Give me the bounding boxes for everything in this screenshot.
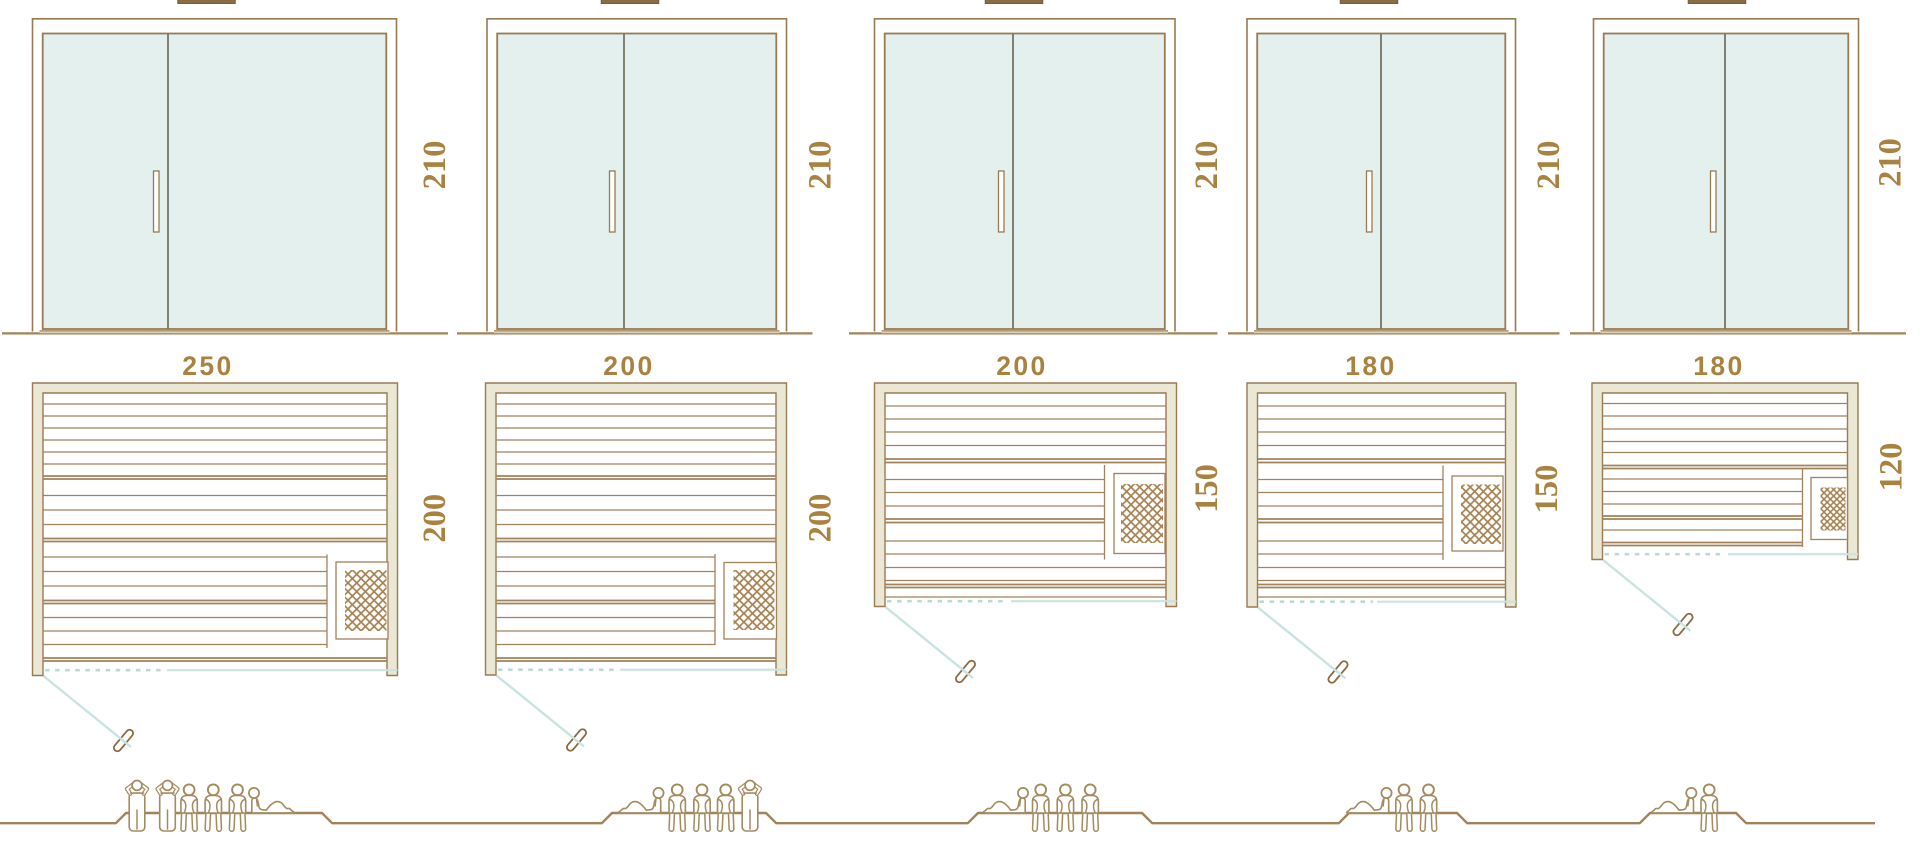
svg-text:180: 180 [1693,351,1744,381]
svg-text:200: 200 [417,494,453,543]
svg-text:150: 150 [1189,464,1225,513]
svg-text:210: 210 [417,141,453,190]
svg-text:210: 210 [1189,141,1225,190]
svg-text:200: 200 [603,351,654,381]
svg-text:200: 200 [996,351,1047,381]
svg-text:210: 210 [1873,138,1909,187]
svg-text:210: 210 [1531,141,1567,190]
svg-text:150: 150 [1529,465,1565,514]
svg-text:120: 120 [1874,443,1910,492]
svg-text:210: 210 [803,141,839,190]
svg-text:250: 250 [182,351,233,381]
svg-text:180: 180 [1345,351,1396,381]
svg-text:200: 200 [803,494,839,543]
